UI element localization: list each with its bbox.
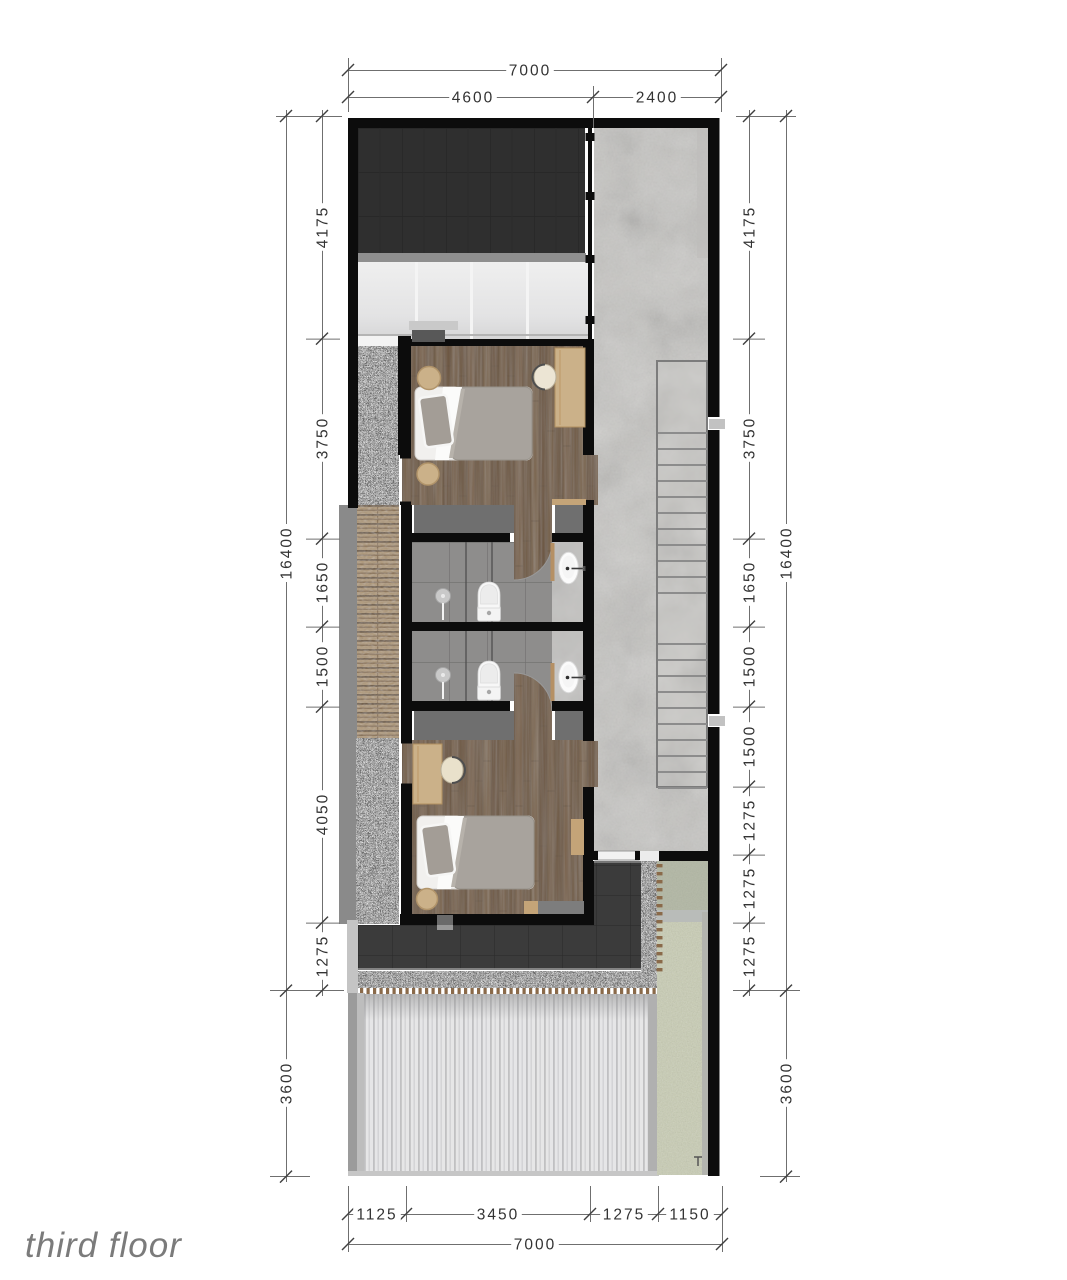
svg-text:3750: 3750 xyxy=(742,417,759,459)
svg-text:1500: 1500 xyxy=(315,645,332,687)
svg-text:7000: 7000 xyxy=(509,63,551,80)
svg-text:4600: 4600 xyxy=(452,90,494,107)
svg-text:1275: 1275 xyxy=(742,935,759,977)
svg-text:16400: 16400 xyxy=(779,526,796,579)
svg-text:1275: 1275 xyxy=(742,799,759,841)
svg-text:4175: 4175 xyxy=(742,206,759,248)
svg-text:third floor: third floor xyxy=(25,1226,182,1265)
svg-text:1500: 1500 xyxy=(742,725,759,767)
svg-text:1275: 1275 xyxy=(315,935,332,977)
svg-text:2400: 2400 xyxy=(636,90,678,107)
svg-text:1650: 1650 xyxy=(315,561,332,603)
svg-text:3600: 3600 xyxy=(279,1062,296,1104)
svg-text:4175: 4175 xyxy=(315,206,332,248)
svg-text:1275: 1275 xyxy=(603,1207,645,1224)
svg-text:1500: 1500 xyxy=(742,645,759,687)
svg-text:1275: 1275 xyxy=(742,867,759,909)
svg-text:4050: 4050 xyxy=(315,793,332,835)
svg-text:3450: 3450 xyxy=(477,1207,519,1224)
svg-text:16400: 16400 xyxy=(279,526,296,579)
svg-text:1125: 1125 xyxy=(356,1207,397,1224)
svg-text:7000: 7000 xyxy=(514,1237,556,1254)
svg-text:1150: 1150 xyxy=(669,1207,710,1224)
svg-text:1650: 1650 xyxy=(742,561,759,603)
svg-text:3600: 3600 xyxy=(779,1062,796,1104)
svg-text:3750: 3750 xyxy=(315,417,332,459)
